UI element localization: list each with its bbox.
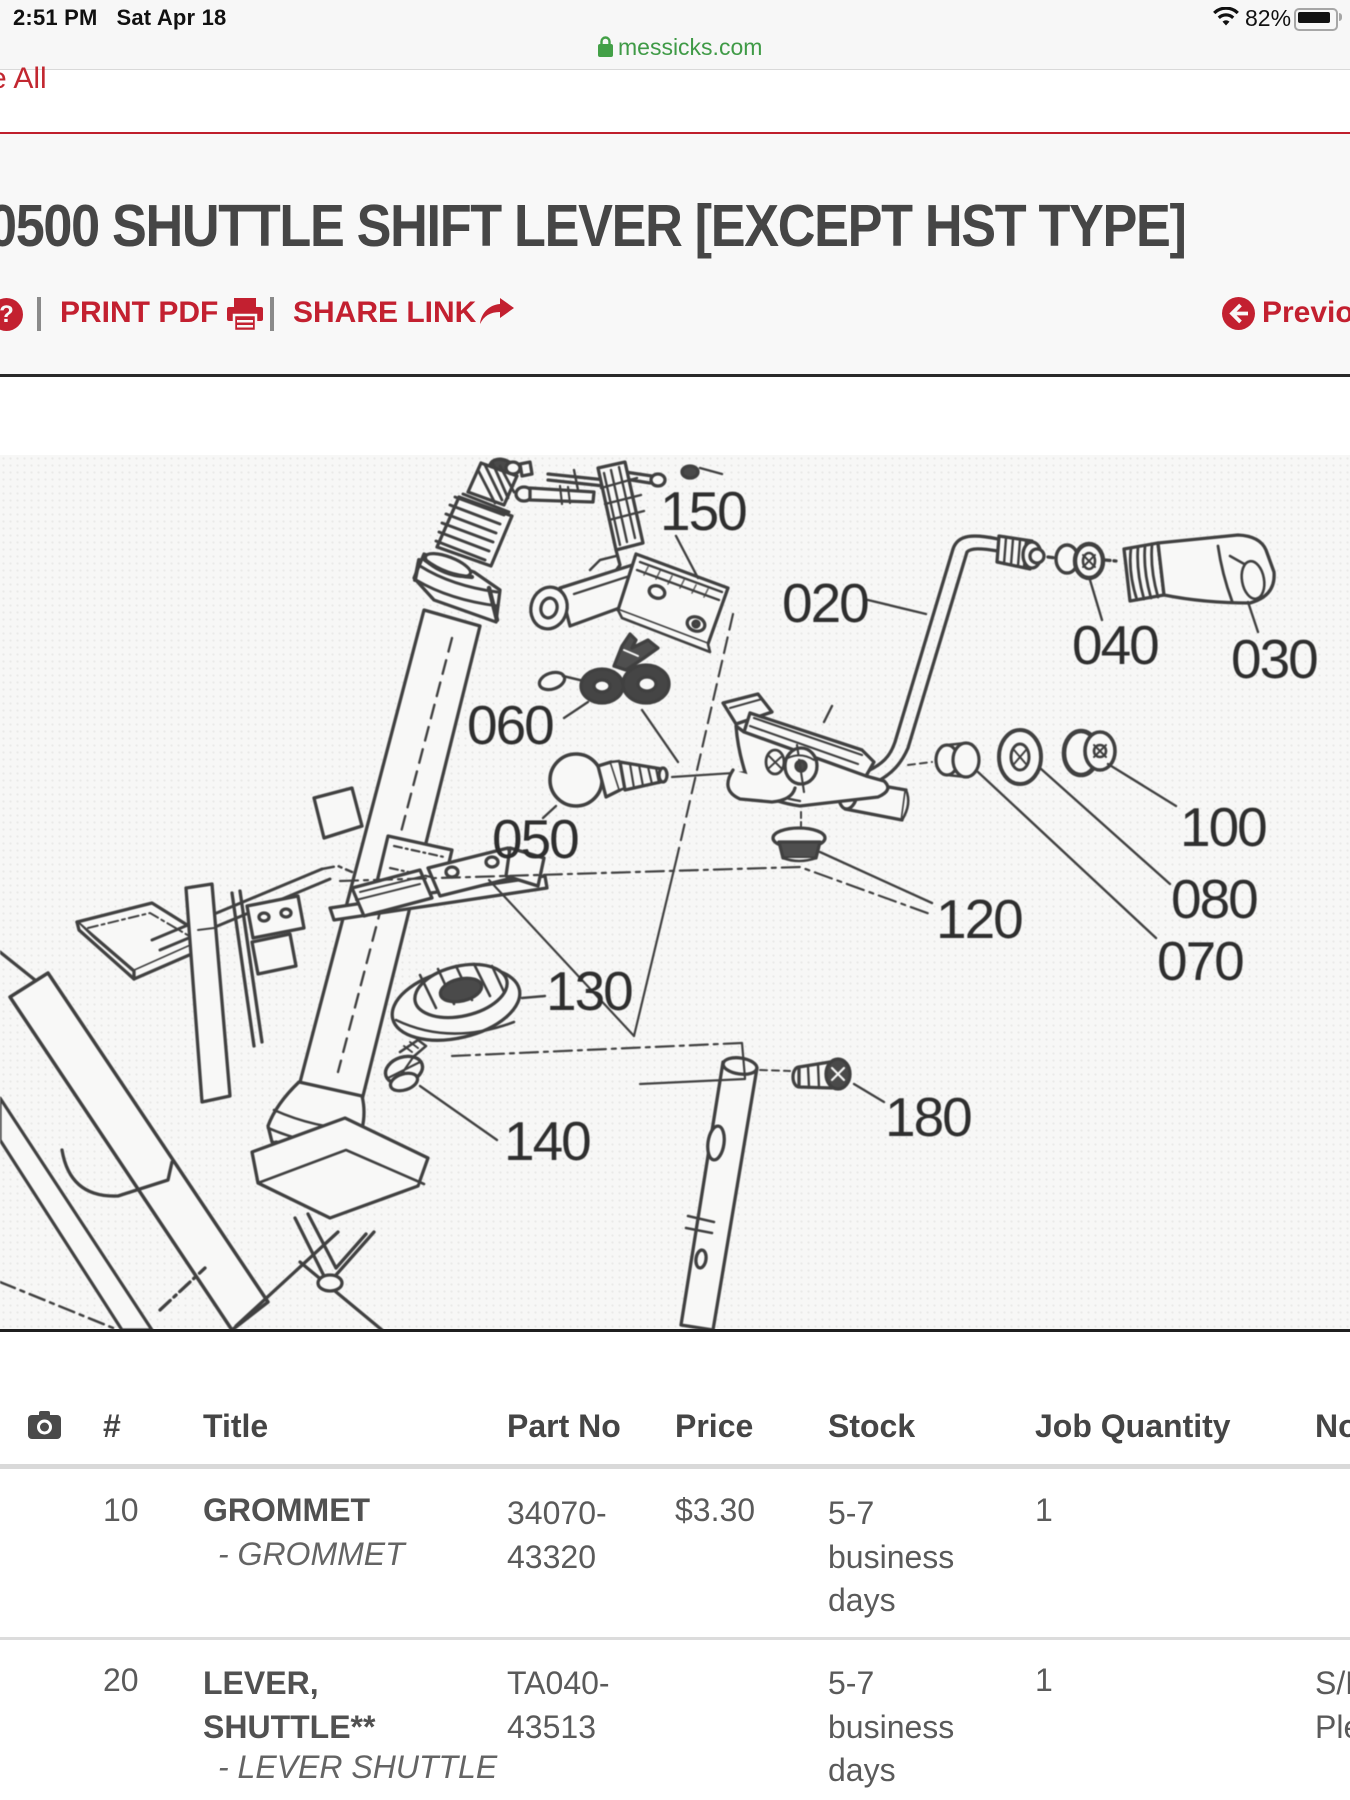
svg-text:180: 180 bbox=[885, 1086, 971, 1148]
svg-text:060: 060 bbox=[467, 694, 553, 756]
svg-text:080: 080 bbox=[1171, 868, 1257, 930]
svg-text:100: 100 bbox=[1180, 796, 1266, 858]
svg-text:070: 070 bbox=[1157, 930, 1243, 992]
svg-text:120: 120 bbox=[936, 888, 1022, 950]
svg-text:040: 040 bbox=[1072, 614, 1158, 676]
svg-text:150: 150 bbox=[660, 480, 746, 542]
svg-text:130: 130 bbox=[546, 960, 632, 1022]
svg-text:020: 020 bbox=[782, 572, 868, 634]
svg-text:140: 140 bbox=[504, 1110, 590, 1172]
svg-text:050: 050 bbox=[492, 808, 578, 870]
svg-text:030: 030 bbox=[1231, 628, 1317, 690]
